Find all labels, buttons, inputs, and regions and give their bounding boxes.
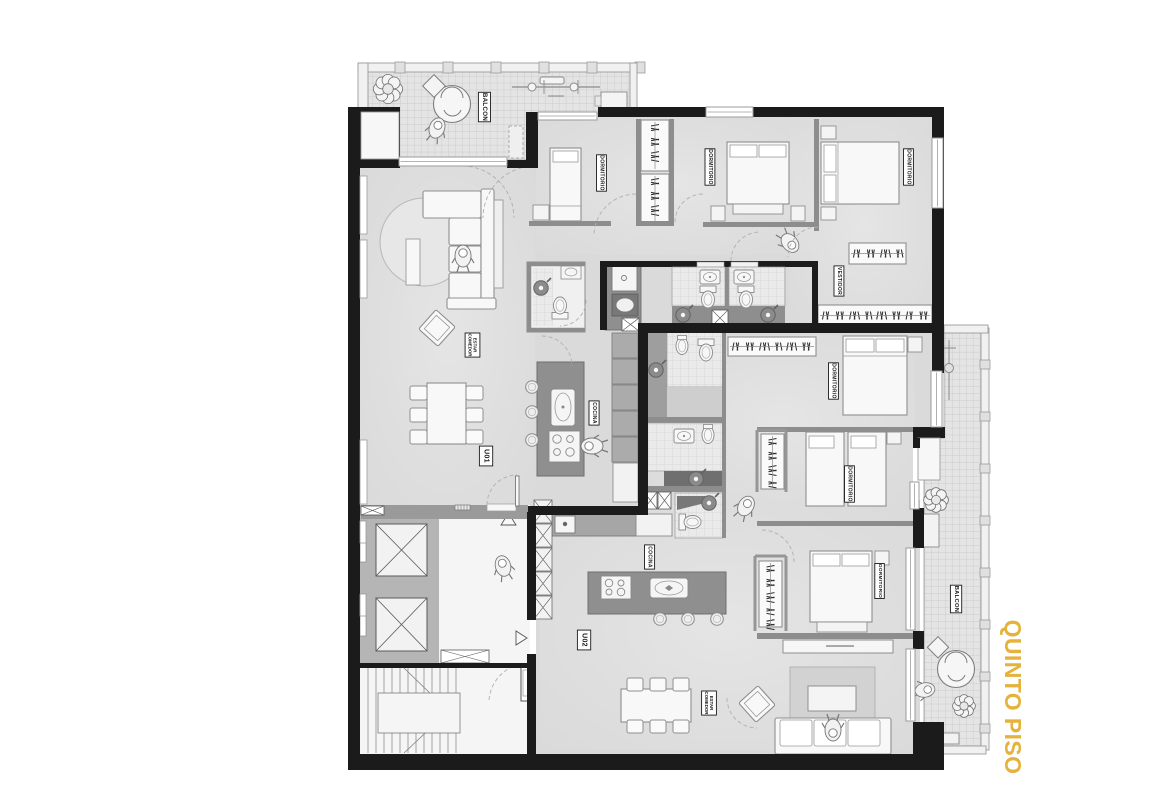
svg-text:COCINA: COCINA [591, 402, 597, 424]
svg-text:U02: U02 [581, 633, 588, 647]
svg-text:DORMITORIO: DORMITORIO [906, 149, 912, 184]
svg-text:DORMITORIO: DORMITORIO [599, 155, 605, 190]
svg-text:DORMITORIO: DORMITORIO [707, 149, 713, 184]
svg-text:BALCON: BALCON [481, 93, 488, 121]
svg-text:QUINTO PISO: QUINTO PISO [1000, 620, 1026, 775]
svg-text:BALCON: BALCON [953, 586, 959, 613]
svg-text:DORMITORIO: DORMITORIO [877, 564, 883, 598]
svg-text:VESTIDOR: VESTIDOR [836, 267, 842, 295]
svg-text:DORMITORIO: DORMITORIO [831, 363, 837, 398]
svg-text:COMEDOR: COMEDOR [467, 334, 472, 358]
svg-text:COMEDOR: COMEDOR [704, 692, 709, 716]
svg-text:DORMITORIO: DORMITORIO [847, 466, 853, 501]
svg-text:U01: U01 [483, 449, 490, 463]
svg-text:COCINA: COCINA [647, 546, 653, 568]
